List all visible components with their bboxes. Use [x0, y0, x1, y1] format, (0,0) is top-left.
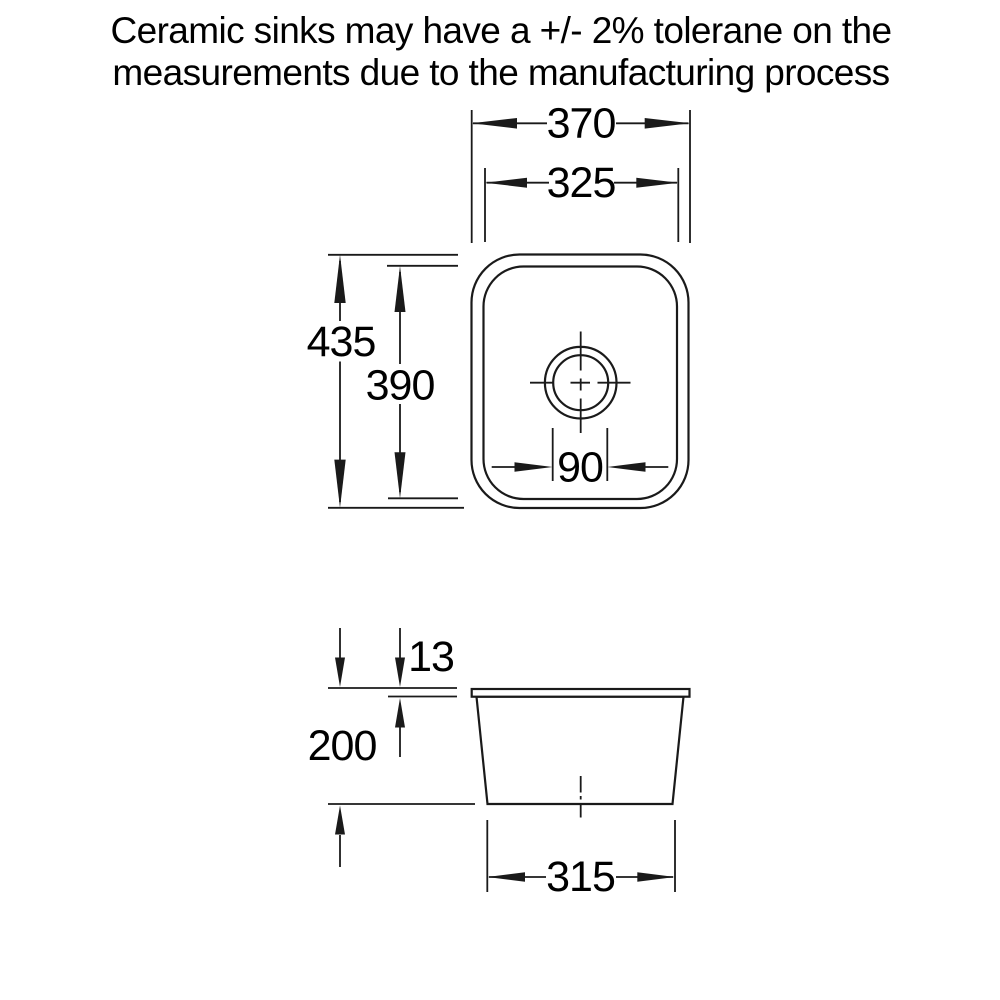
arrow-up-icon [335, 806, 345, 835]
arrow-down-icon [395, 658, 405, 688]
dim-inner-width: 325 [485, 159, 678, 242]
dim-inner-width-value: 325 [547, 159, 616, 207]
arrow-left-icon [487, 872, 525, 882]
arrow-up-icon [334, 255, 345, 303]
technical-drawing: Ceramic sinks may have a +/- 2% tolerane… [0, 0, 1000, 1000]
sink-rim-profile [472, 689, 690, 697]
dim-rim-height-value: 13 [408, 633, 454, 681]
dim-outer-width-value: 370 [547, 100, 616, 148]
arrow-down-icon [334, 460, 345, 508]
arrow-right-icon [636, 178, 678, 188]
dim-drain-width: 90 [492, 428, 669, 492]
dim-outer-depth-value: 435 [307, 318, 376, 366]
dim-inner-depth-value: 390 [366, 362, 435, 410]
tolerance-note-line2: measurements due to the manufacturing pr… [112, 52, 889, 93]
sink-dimension-diagram: Ceramic sinks may have a +/- 2% tolerane… [0, 0, 1000, 1000]
arrow-right-icon [637, 872, 675, 882]
tolerance-note: Ceramic sinks may have a +/- 2% tolerane… [110, 10, 891, 93]
arrow-down-icon [335, 658, 345, 688]
arrow-left-icon [472, 118, 517, 129]
arrow-left-icon [485, 178, 527, 188]
sink-side-view [472, 689, 690, 818]
tolerance-note-line1: Ceramic sinks may have a +/- 2% tolerane… [110, 10, 891, 51]
dim-bowl-depth-value: 200 [308, 722, 377, 770]
arrow-down-icon [395, 452, 406, 498]
arrow-right-icon [515, 462, 553, 472]
arrow-up-icon [395, 698, 405, 728]
arrow-left-icon [607, 462, 645, 472]
dim-drain-width-value: 90 [557, 444, 603, 492]
dim-base-width-value: 315 [546, 853, 615, 901]
dim-inner-depth: 390 [366, 266, 458, 499]
arrow-up-icon [395, 266, 406, 312]
dim-base-width: 315 [487, 820, 675, 901]
arrow-right-icon [645, 118, 690, 129]
